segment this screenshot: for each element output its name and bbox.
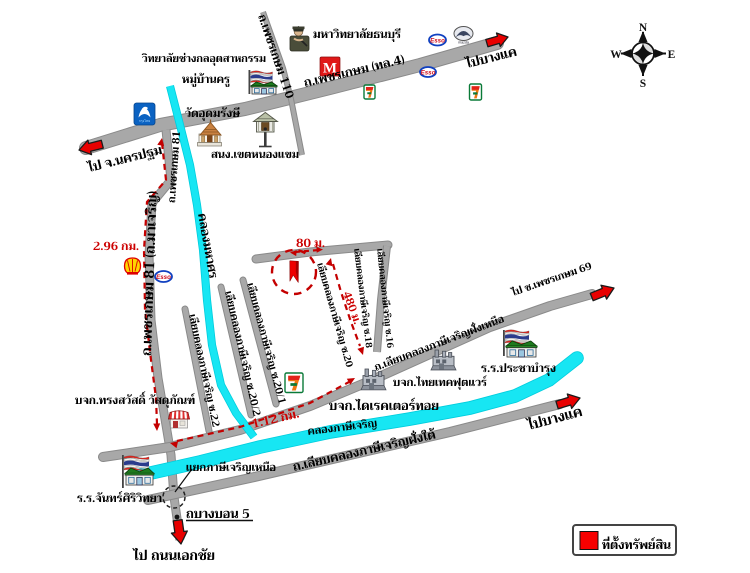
svg-text:Esso: Esso <box>430 37 445 44</box>
svg-text:W: W <box>610 49 622 61</box>
svg-text:E: E <box>668 49 676 61</box>
svg-text:Esso: Esso <box>156 274 171 281</box>
svg-text:mazda: mazda <box>458 41 469 45</box>
svg-text:N: N <box>639 22 648 34</box>
svg-text:Esso: Esso <box>421 69 436 76</box>
svg-text:S: S <box>640 78 646 90</box>
